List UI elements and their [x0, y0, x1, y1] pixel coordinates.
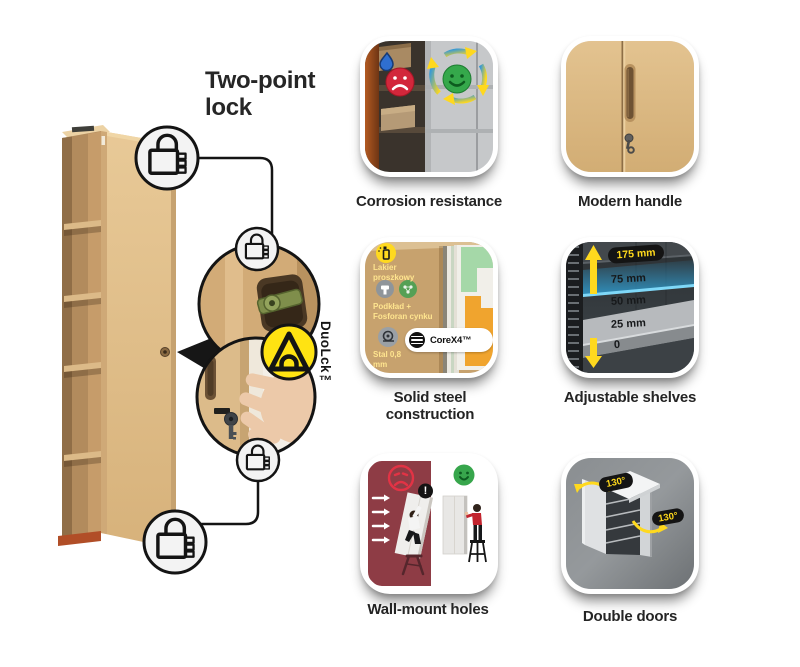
label-zinc-primer: Podkład + Fosforan cynku [373, 302, 443, 321]
label-steel-thickness: Stal 0,8 mm [373, 350, 403, 369]
measurement-75: 75 mm [611, 272, 646, 286]
lock-point-lower-small [237, 439, 279, 481]
tile-solid-steel: Lakier proszkowy Podkład + Fosforan cynk… [360, 237, 498, 378]
corex4-label: CoreX4™ [430, 335, 471, 346]
handle-illustration [566, 41, 694, 172]
primer-icon [376, 280, 394, 298]
duolck-brand-label: DuoLck™ [318, 321, 333, 416]
happy-face-icon [443, 65, 471, 93]
angle-value-right: 130° [657, 510, 678, 524]
corex4-badge: CoreX4™ [405, 328, 493, 352]
caption-wall-mount: Wall-mount holes [328, 602, 528, 619]
tile-wall-mount: ! [360, 453, 498, 594]
tile-corrosion-resistance [360, 36, 498, 177]
powder-coat-icon [376, 243, 396, 263]
door-gap [622, 41, 624, 172]
caption-double-doors: Double doors [530, 609, 730, 626]
zinc-phosphate-icon [399, 280, 417, 298]
corrosion-illustration [365, 41, 493, 172]
stool [469, 540, 486, 562]
measurement-50: 50 mm [611, 294, 646, 308]
measurement-175: 175 mm [616, 247, 656, 262]
mounted-cabinet [443, 496, 467, 554]
cabinet-door [101, 131, 176, 549]
infographic-canvas: Two-point lock [0, 0, 800, 667]
lock-point-top-large [136, 127, 198, 189]
tile-adjustable-shelves: 175 mm 75 mm 50 mm 25 mm 0 [561, 237, 699, 378]
standing-person [465, 504, 482, 540]
happy-face-icon [454, 465, 475, 486]
caption-corrosion-resistance: Corrosion resistance [329, 194, 529, 211]
label-powder-coat: Lakier proszkowy [373, 263, 425, 282]
recessed-handle [625, 64, 636, 122]
angle-value-left: 130° [605, 475, 627, 490]
sad-face-icon [386, 68, 414, 96]
tile-modern-handle [561, 36, 699, 177]
two-point-lock-diagram [0, 0, 350, 667]
tile-double-doors: 130° 130° [561, 453, 699, 594]
wall-mount-illustration [365, 458, 493, 589]
measurement-0: 0 [614, 339, 621, 351]
warning-mark: ! [418, 485, 433, 497]
corex4-logo-icon [409, 332, 425, 348]
steel-coil-icon [378, 327, 398, 347]
lock-point-bottom-large [144, 511, 206, 573]
shelf-rail [566, 242, 583, 373]
duolck-badge [262, 325, 316, 379]
measurement-25: 25 mm [611, 317, 646, 331]
caption-modern-handle: Modern handle [530, 194, 730, 211]
lock-point-upper-small [236, 228, 278, 270]
caption-solid-steel: Solid steel construction [375, 390, 485, 424]
caption-adjustable-shelves: Adjustable shelves [530, 390, 730, 407]
